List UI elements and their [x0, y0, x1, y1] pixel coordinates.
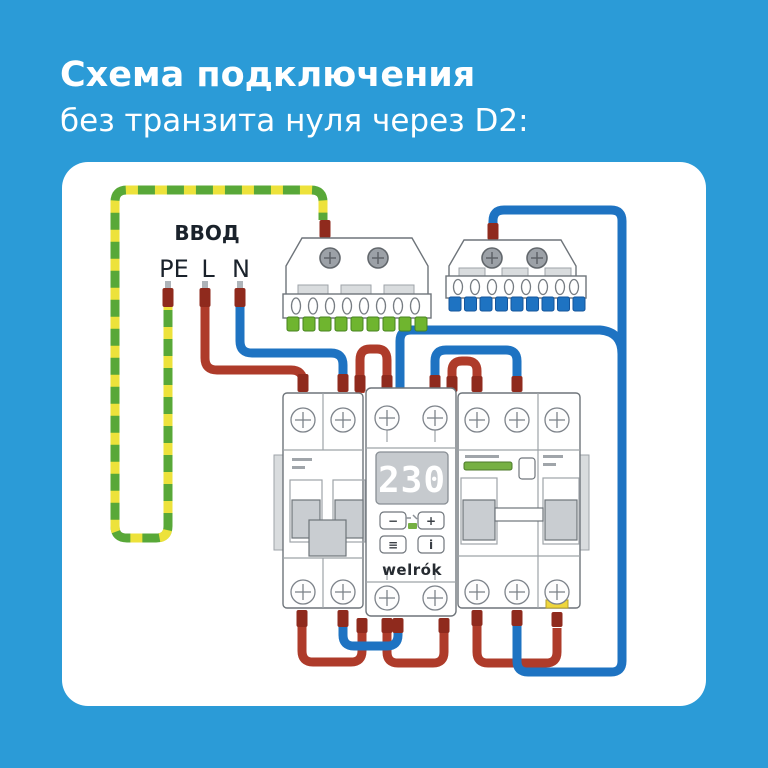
ferrule — [382, 618, 393, 633]
rcd-marking — [543, 463, 556, 466]
ferrule — [512, 610, 523, 626]
terminal-label-pe: PE — [159, 255, 189, 283]
relay-led — [408, 523, 417, 529]
n-bus-bar — [446, 240, 586, 311]
breaker-toggle-tie — [309, 520, 346, 556]
ferrule — [338, 610, 349, 627]
pe-bus-bar — [283, 238, 431, 331]
rcd-indicator — [464, 462, 512, 470]
breaker-marking — [292, 458, 312, 461]
rcd-marking — [543, 455, 563, 458]
ferrule — [357, 618, 368, 633]
relay-brand: welrók — [382, 561, 442, 579]
ferrule — [200, 288, 211, 307]
ferrule — [163, 288, 174, 307]
minus-icon: − — [388, 514, 398, 528]
breaker-side-tab — [274, 455, 283, 550]
rcd-marking — [465, 455, 499, 458]
pe-bus-teeth — [287, 317, 427, 331]
terminal-label-l: L — [201, 255, 215, 283]
menu-icon: ≡ — [388, 538, 398, 552]
terminal-label-n: N — [232, 255, 250, 283]
breaker-marking — [292, 466, 305, 469]
ferrule — [393, 618, 404, 633]
ferrule — [439, 618, 450, 633]
ferrule — [298, 374, 309, 392]
ferrule — [552, 612, 563, 627]
plus-icon: + — [426, 514, 436, 528]
page-title: Схема подключения — [60, 55, 475, 95]
relay-display-value: 230 — [378, 460, 446, 501]
rcd-toggle — [545, 500, 577, 540]
input-label: ВВОД — [174, 221, 239, 245]
ferrule — [320, 220, 331, 238]
ferrule — [338, 374, 349, 392]
device-voltage-relay: 230 − + ≡ i welrók — [366, 388, 456, 616]
rcd-toggle — [463, 500, 495, 540]
wiring-diagram: Схема подключения без транзита нуля чере… — [0, 0, 768, 768]
ferrule — [488, 223, 499, 240]
ferrule — [235, 288, 246, 307]
ferrule — [472, 610, 483, 626]
page-subtitle: без транзита нуля через D2: — [60, 103, 529, 139]
ferrule — [297, 610, 308, 627]
rcd-test-button — [519, 458, 535, 479]
ferrule — [512, 376, 523, 392]
pe-bus-holes-band — [283, 294, 431, 318]
ferrule — [355, 375, 366, 392]
ferrule — [472, 376, 483, 392]
device-rcd — [458, 393, 589, 608]
rcd-toggle-tie — [495, 508, 543, 521]
info-icon: i — [429, 538, 433, 552]
n-bus-teeth — [449, 297, 585, 311]
device-input-breaker — [274, 393, 365, 608]
rcd-side-tab — [580, 455, 589, 550]
